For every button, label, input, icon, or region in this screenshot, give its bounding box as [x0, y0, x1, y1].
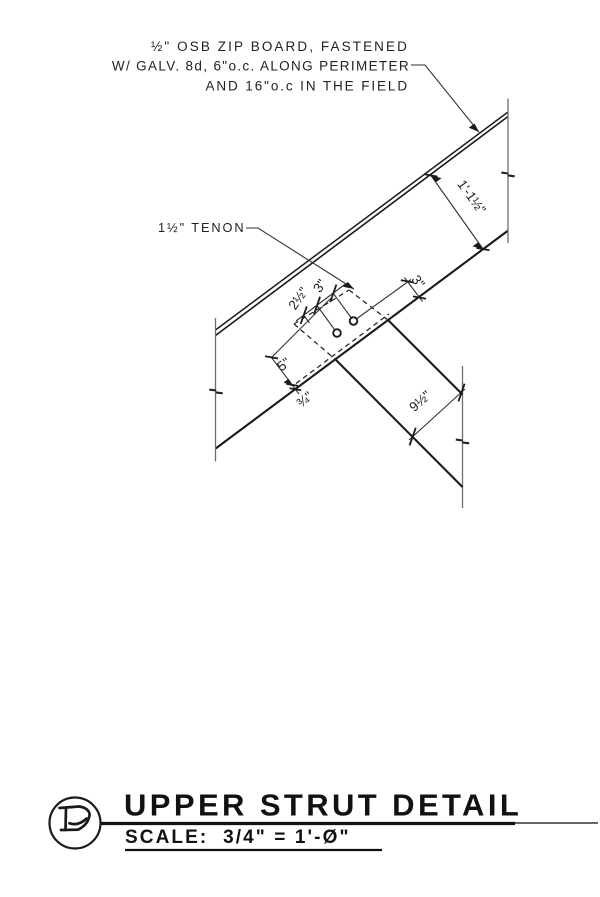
- svg-text:2½": 2½": [285, 284, 311, 312]
- svg-text:9½": 9½": [406, 388, 434, 415]
- svg-text:1½" TENON: 1½" TENON: [158, 220, 246, 235]
- svg-text:AND 16"o.c IN THE FIELD: AND 16"o.c IN THE FIELD: [205, 79, 409, 94]
- svg-text:W/ GALV. 8d, 6"o.c. ALONG PERI: W/ GALV. 8d, 6"o.c. ALONG PERIMETER: [112, 59, 410, 74]
- svg-text:UPPER STRUT DETAIL: UPPER STRUT DETAIL: [124, 788, 522, 823]
- svg-text:3": 3": [408, 272, 428, 291]
- svg-text:SCALE: 3/4" = 1'-Ø": SCALE: 3/4" = 1'-Ø": [125, 827, 351, 848]
- svg-text:½" OSB ZIP BOARD, FASTENED: ½" OSB ZIP BOARD, FASTENED: [151, 39, 409, 54]
- svg-text:3": 3": [310, 276, 329, 295]
- svg-text:1'-1½": 1'-1½": [454, 177, 489, 217]
